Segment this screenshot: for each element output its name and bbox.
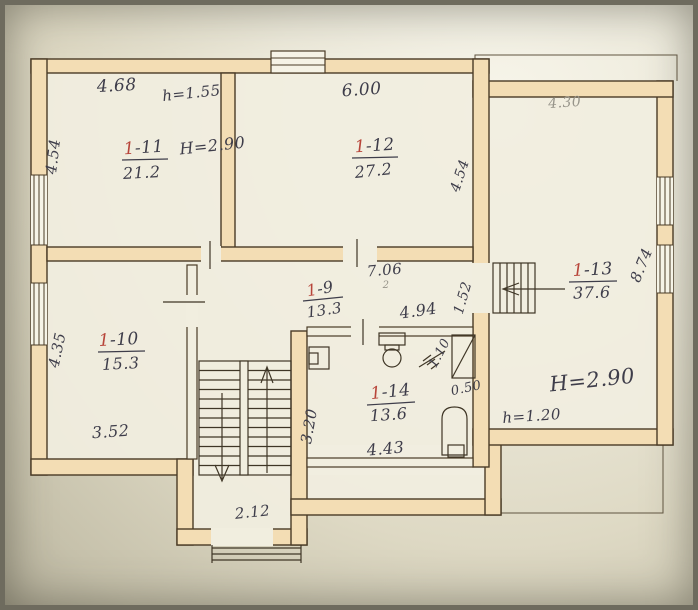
room-1-10-area: 15.3 [101,353,140,374]
porch-steps [212,545,301,563]
dim-porch-width: 2.12 [233,501,271,523]
room-1-14-area: 13.6 [369,404,408,426]
dim-hall-note: 2 [382,280,390,291]
floor-plan-sheet: 4.68 h=1.55 1-11 H=2.90 21.2 4.54 6.00 1… [0,0,698,610]
dim-r10-width: 3.52 [91,421,130,443]
window-left-lower [31,283,47,345]
room-1-11-area: 21.2 [121,162,161,183]
window-left-upper [31,175,47,245]
room-1-12-area: 27.2 [353,159,393,182]
room-number-1-12-rest: -12 [365,135,395,157]
window-top-bay [271,51,325,73]
room-number-1-14: 1-14 [369,380,411,404]
window-right-lower [657,245,673,293]
floor-plan-drawing: 4.68 h=1.55 1-11 H=2.90 21.2 4.54 6.00 1… [5,5,698,610]
room-number-1-10-rest: -10 [109,329,139,350]
dim-hall-width: 7.06 [366,260,403,281]
window-right-upper [657,177,673,225]
room-number-1-11-rest: -11 [134,137,164,159]
dim-r12-width: 6.00 [341,79,382,102]
veranda-outline [501,445,663,513]
room-number-1-10: 1-10 [98,329,139,351]
room-number-1-14-rest: -14 [381,380,412,403]
room-number-1-13-rest: -13 [583,259,613,280]
room-number-1-12: 1-12 [354,135,396,158]
dim-r13-width: 4.30 [547,94,582,112]
eaves-outline [475,55,677,81]
room-number-1-13: 1-13 [572,259,613,281]
room-number-1-11: 1-11 [123,137,165,160]
room-1-13-area: 37.6 [573,282,611,302]
dim-r14-width: 4.43 [365,437,405,459]
dim-r11-width: 4.68 [95,75,137,97]
room-number-1-9-rest: -9 [315,277,335,299]
